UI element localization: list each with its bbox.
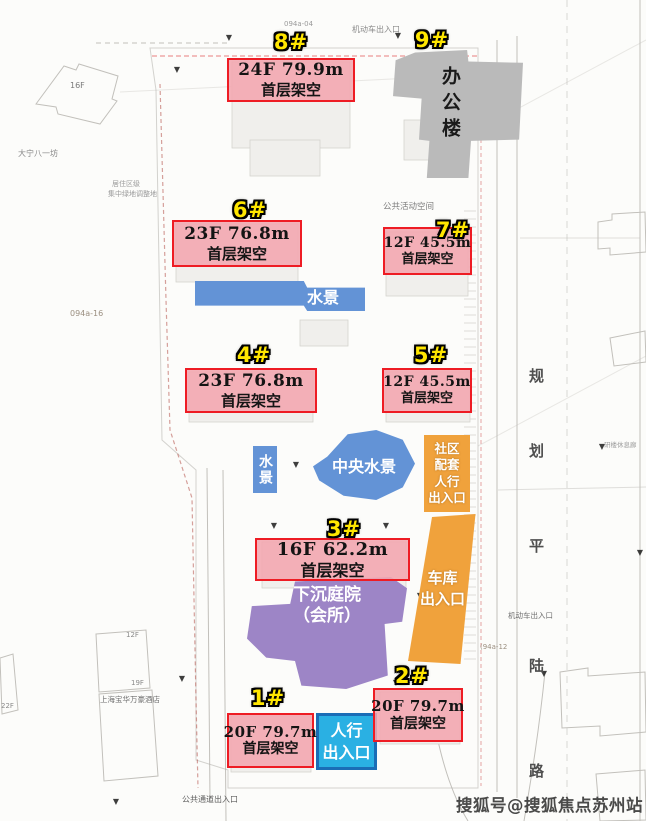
green-note-line1: 居住区级 [112, 179, 140, 189]
building-16f-label: 16F [70, 81, 85, 90]
building-3-floors: 16F 62.2m [277, 539, 388, 561]
building-6-podium: 首层架空 [207, 245, 267, 263]
building-7-podium: 首层架空 [401, 252, 453, 268]
road-name-char-4: 陆 [529, 655, 544, 676]
plot-number-top: 094a-04 [284, 20, 313, 28]
building-5-floors: 12F 45.5m [383, 374, 471, 391]
svg-text:▼: ▼ [293, 460, 300, 469]
building-1-marker: 1# [251, 686, 285, 710]
svg-text:▼: ▼ [113, 797, 120, 806]
svg-text:▼: ▼ [637, 548, 644, 557]
office-building-label: 办公楼 [437, 66, 464, 144]
building-3-marker: 3# [327, 517, 361, 541]
public-space-label: 公共活动空间 [383, 200, 434, 212]
svg-text:▼: ▼ [383, 521, 390, 530]
building-2-spec-card: 20F 79.7m 首层架空 [373, 688, 463, 742]
building-5-spec-card: 12F 45.5m 首层架空 [382, 368, 472, 413]
building-5-marker: 5# [414, 343, 448, 367]
building-9-marker: 9# [415, 28, 449, 52]
building-7-marker: 7# [436, 218, 470, 242]
rest-corridor-label: 研楼休息廊 [604, 439, 637, 449]
neighborhood-label: 大宁八一坊 [18, 148, 58, 159]
building-8-podium: 首层架空 [261, 81, 321, 99]
community-pedestrian-entrance: 社区 配套 人行 出入口 [424, 435, 470, 512]
plot-number-left: 094a-16 [70, 309, 103, 318]
road-name-char-5: 路 [529, 760, 544, 781]
community-entrance-line3: 人行 [434, 474, 459, 491]
building-12f-label: 12F [126, 631, 139, 639]
svg-text:▼: ▼ [226, 33, 233, 42]
building-6-floors: 23F 76.8m [184, 224, 290, 245]
hotel-label: 上海宝华万豪酒店 [100, 694, 160, 705]
road-name-char-1: 规 [529, 365, 544, 386]
building-1-floors: 20F 79.7m [224, 723, 318, 741]
building-3-spec-card: 16F 62.2m 首层架空 [255, 538, 410, 581]
road-name-char-3: 平 [529, 535, 544, 556]
svg-text:▼: ▼ [271, 521, 278, 530]
building-8-floors: 24F 79.9m [238, 60, 344, 81]
building-2-marker: 2# [395, 664, 429, 688]
clubhouse-label-line2: （会所） [293, 606, 361, 627]
garage-entrance-line1: 车库 [427, 568, 457, 589]
pedestrian-entrance-line2: 出入口 [322, 742, 370, 764]
plot-number-right: (94a-12 [480, 643, 507, 651]
green-note-line2: 集中绿地调整地 [108, 189, 157, 199]
building-5-podium: 首层架空 [401, 391, 453, 407]
water-feature-strip-label: 水景 [307, 284, 339, 308]
community-entrance-line2: 配套 [434, 457, 459, 474]
garage-entrance-line2: 出入口 [420, 589, 465, 610]
svg-text:▼: ▼ [174, 65, 181, 74]
pedestrian-entrance: 人行 出入口 [316, 713, 377, 770]
public-passage-label: 公共通道出入口 [182, 794, 238, 805]
motor-entrance-right-label: 机动车出入口 [508, 610, 553, 621]
motor-entrance-top-label: 机动车出入口 [352, 24, 400, 35]
building-6-spec-card: 23F 76.8m 首层架空 [172, 220, 302, 267]
central-water-feature-label: 中央水景 [332, 453, 396, 477]
building-2-floors: 20F 79.7m [371, 697, 465, 715]
sohu-watermark: 搜狐号@搜狐焦点苏州站 [456, 792, 643, 816]
site-plan: ▼▼▼ ▼▼▼ ▼▼▼ ▼▼▼ ▼▼▼ ▼ 办公楼 水景 水景 中央水景 下沉庭… [0, 0, 646, 821]
building-22f-label: 22F [1, 702, 14, 710]
building-3-podium: 首层架空 [300, 561, 364, 581]
road-name-char-2: 划 [529, 440, 544, 461]
building-8-spec-card: 24F 79.9m 首层架空 [227, 58, 355, 102]
community-entrance-line4: 出入口 [428, 490, 466, 507]
site-plan-background: ▼▼▼ ▼▼▼ ▼▼▼ ▼▼▼ ▼▼▼ ▼ [0, 0, 646, 821]
building-6-marker: 6# [233, 198, 267, 222]
building-2-podium: 首层架空 [390, 716, 446, 733]
svg-text:▼: ▼ [179, 674, 186, 683]
building-8-marker: 8# [274, 30, 308, 54]
building-1-spec-card: 20F 79.7m 首层架空 [227, 713, 314, 768]
water-pond-label: 水景 [255, 454, 275, 486]
clubhouse-label-line1: 下沉庭院 [293, 585, 361, 606]
building-19f-label: 19F [131, 679, 144, 687]
building-4-podium: 首层架空 [221, 392, 281, 410]
building-4-floors: 23F 76.8m [198, 371, 304, 392]
building-1-podium: 首层架空 [243, 741, 299, 758]
water-pond: 水景 [253, 446, 277, 493]
pedestrian-entrance-line1: 人行 [330, 720, 362, 742]
community-entrance-line1: 社区 [434, 441, 459, 458]
building-4-marker: 4# [237, 343, 271, 367]
building-4-spec-card: 23F 76.8m 首层架空 [185, 368, 317, 413]
